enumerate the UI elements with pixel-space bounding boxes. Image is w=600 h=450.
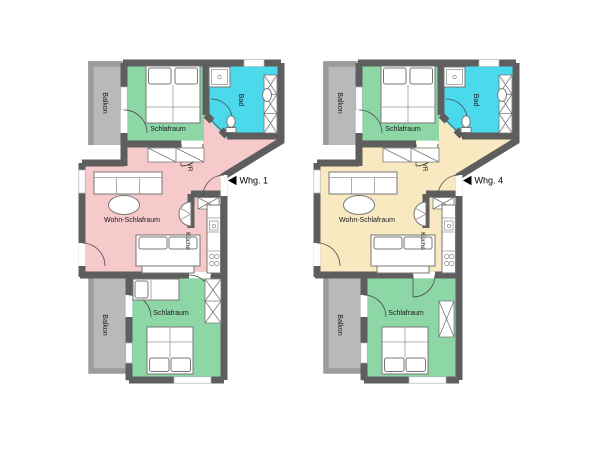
sink-icon (498, 89, 507, 102)
shower-icon (209, 67, 230, 87)
window-opening (126, 343, 132, 363)
shower-icon (444, 67, 465, 87)
pillow (384, 68, 407, 84)
room-label-bedroom-bottom: Schlafraum (388, 310, 424, 317)
door-opening (314, 243, 321, 266)
floorplan-whg1: Balkon Schlafraum Bad VR Wohn-Schlafraum… (79, 60, 281, 384)
pillow (404, 237, 432, 249)
pillow (406, 358, 426, 372)
vanity-cabinet-icon (264, 75, 277, 133)
pillow (374, 237, 402, 249)
room-label-kitchen: Küche (184, 232, 191, 250)
room-label-balcony-bottom: Balkon (336, 314, 343, 336)
room-label-bedroom-bottom: Schlafraum (153, 310, 189, 317)
pillow (139, 237, 167, 249)
entrance-arrow-icon (228, 176, 237, 185)
wardrobe-icon (205, 279, 221, 323)
window-opening (79, 170, 85, 193)
floorplan-canvas: Balkon Schlafraum Bad VR Wohn-Schlafraum… (0, 0, 600, 450)
toilet-icon (227, 116, 235, 128)
pillow (149, 68, 172, 84)
entrance-label-whg4: Whg. 4 (475, 176, 504, 186)
room-label-balcony-top: Balkon (101, 92, 108, 114)
toilet-tank (226, 128, 236, 133)
toilet-tank (461, 128, 471, 133)
wardrobe-icon (439, 301, 454, 337)
wardrobe-icon (148, 148, 204, 162)
window-opening (361, 343, 367, 363)
window-opening (121, 87, 127, 110)
sofa-icon (94, 172, 162, 194)
sofa-bed-base (377, 266, 429, 273)
door-opening-entrance (456, 175, 463, 196)
door-opening (126, 295, 133, 317)
sofa-bed-base (142, 266, 194, 273)
room-label-kitchen: Küche (419, 232, 426, 250)
room-label-balcony-top: Balkon (336, 92, 343, 114)
room-label-bedroom-top: Schlafraum (385, 126, 421, 133)
toilet-icon (462, 116, 470, 128)
room-label-bedroom-top: Schlafraum (150, 126, 186, 133)
pillow (175, 68, 198, 84)
room-label-bath: Bad (237, 94, 244, 107)
table-icon (109, 196, 140, 215)
room-label-hall: VR (186, 163, 193, 172)
pillow (410, 68, 433, 84)
window-opening (314, 170, 320, 193)
floorplan-page: Balkon Schlafraum Bad VR Wohn-Schlafraum… (0, 0, 600, 450)
entrance-label-whg1: Whg. 1 (240, 176, 269, 186)
pillow (385, 358, 405, 372)
table-icon (344, 196, 375, 215)
door-opening (79, 243, 86, 266)
door-opening-entrance (221, 175, 228, 196)
door-opening (356, 110, 363, 133)
window-opening (244, 60, 264, 67)
door-opening (121, 110, 128, 133)
door-opening (361, 295, 368, 317)
window-opening (174, 377, 211, 383)
door-opening (417, 141, 438, 148)
pillow (150, 358, 170, 372)
vanity-cabinet-icon (499, 75, 512, 133)
pillow (169, 237, 197, 249)
room-label-living: Wohn-Schlafraum (339, 217, 395, 224)
wardrobe-icon (383, 148, 439, 162)
room-label-hall: VR (421, 163, 428, 172)
sofa-icon (329, 172, 397, 194)
room-label-bath: Bad (472, 94, 479, 107)
room-label-living: Wohn-Schlafraum (104, 217, 160, 224)
room-label-balcony-bottom: Balkon (101, 314, 108, 336)
door-opening (182, 141, 203, 148)
window-opening (409, 377, 446, 383)
window-opening (479, 60, 499, 67)
pillow (135, 281, 148, 298)
window-opening (356, 87, 362, 110)
pillow (171, 358, 191, 372)
sink-icon (263, 89, 272, 102)
entrance-arrow-icon (463, 176, 472, 185)
floorplan-whg4: Balkon Schlafraum Bad VR Wohn-Schlafraum… (314, 60, 516, 384)
